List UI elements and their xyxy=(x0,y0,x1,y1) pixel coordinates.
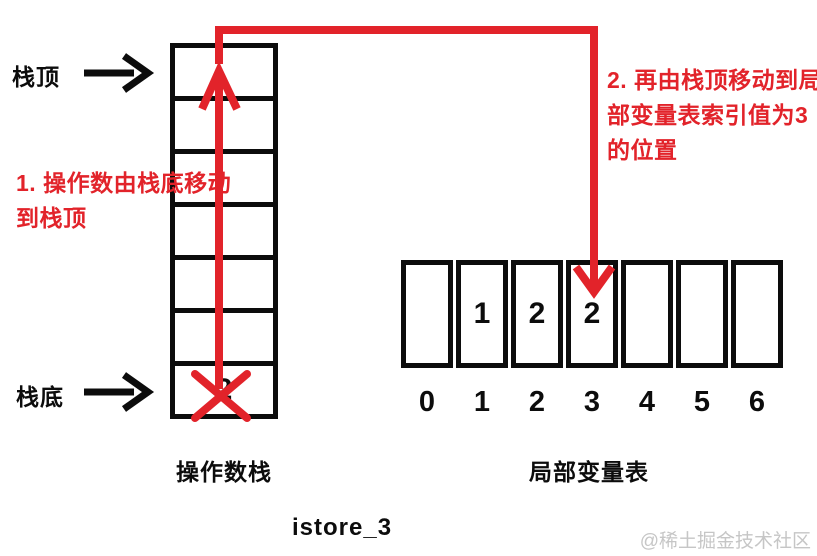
lvt-index-2: 2 xyxy=(511,386,563,419)
stack-cell-bottom: 2 xyxy=(175,366,273,414)
operand-stack-caption: 操作数栈 xyxy=(176,453,272,487)
annotation-step1-line1: 1. 操作数由栈底移动 xyxy=(16,166,231,201)
annotation-step2-line1: 2. 再由栈顶移动到局 xyxy=(607,63,817,98)
lvt-cell-2: 2 xyxy=(511,260,563,368)
lvt-index-1: 1 xyxy=(456,386,508,419)
stack-bottom-arrow xyxy=(84,375,148,409)
annotation-step1: 1. 操作数由栈底移动 到栈顶 xyxy=(16,166,231,236)
annotation-step2: 2. 再由栈顶移动到局 部变量表索引值为3 的位置 xyxy=(607,63,817,168)
lvt-index-4: 4 xyxy=(621,386,673,419)
stack-cell-top xyxy=(175,48,273,101)
stack-top-arrow xyxy=(84,56,148,90)
lvt-index-6: 6 xyxy=(731,386,783,419)
local-variable-table-caption: 局部变量表 xyxy=(529,453,649,487)
annotation-step2-line2: 部变量表索引值为3 xyxy=(607,98,817,133)
crossed-out-value: 2 xyxy=(175,366,273,414)
stack-cell xyxy=(175,260,273,313)
lvt-cell-0 xyxy=(401,260,453,368)
lvt-cell-3: 2 xyxy=(566,260,618,368)
lvt-index-row: 0 1 2 3 4 5 6 xyxy=(401,386,783,419)
local-variable-table: 1 2 2 xyxy=(401,260,783,368)
lvt-cell-1: 1 xyxy=(456,260,508,368)
lvt-cell-4 xyxy=(621,260,673,368)
stack-top-label: 栈顶 xyxy=(12,58,60,92)
lvt-index-5: 5 xyxy=(676,386,728,419)
annotation-step2-line3: 的位置 xyxy=(607,133,817,168)
diagram-title: istore_3 xyxy=(292,514,392,542)
lvt-index-0: 0 xyxy=(401,386,453,419)
stack-bottom-label: 栈底 xyxy=(16,378,64,412)
stack-cell xyxy=(175,101,273,154)
annotation-step1-line2: 到栈顶 xyxy=(16,201,231,236)
lvt-index-3: 3 xyxy=(566,386,618,419)
stack-cell xyxy=(175,313,273,366)
istore3-diagram: 2 栈顶 栈底 1. 操作数由栈底移动 到栈顶 2. 再由栈顶移动到局 部变量表… xyxy=(0,0,817,556)
lvt-cell-5 xyxy=(676,260,728,368)
watermark: @稀土掘金技术社区 xyxy=(640,526,811,553)
lvt-cell-6 xyxy=(731,260,783,368)
